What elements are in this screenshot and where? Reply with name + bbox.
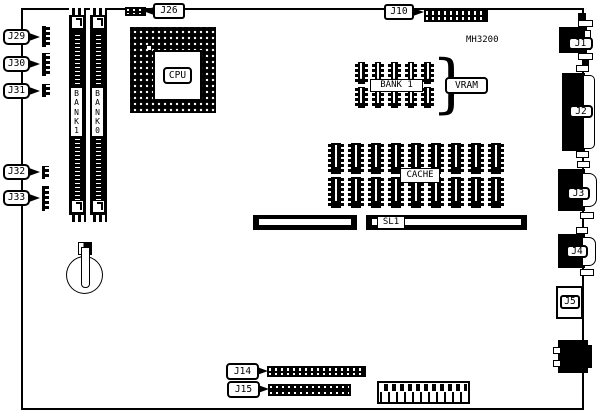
model-number-text: MH3200 [466, 36, 499, 45]
cpu-socket: CPU [130, 27, 216, 113]
simm-latch-icon [72, 17, 83, 28]
memory-chip [468, 177, 484, 208]
header-j15 [268, 384, 351, 396]
port-j1-tab [578, 53, 593, 60]
callout-vram: VRAM [445, 77, 488, 94]
port-j1-nub [578, 13, 586, 20]
jumper-j30 [42, 53, 50, 76]
simm-cap [90, 8, 107, 15]
jumper-j31 [42, 84, 50, 97]
callout-j31: J31 [3, 83, 30, 99]
port-j2-tab [576, 65, 589, 72]
port-j5-label: J5 [560, 295, 580, 309]
vram-bank-label: BANK 1 [370, 79, 423, 92]
memory-chip [368, 143, 384, 174]
callout-j10: J10 [384, 4, 414, 20]
power-connector-pins [380, 384, 467, 391]
port-j3-tab [577, 161, 590, 168]
jumper-j29 [42, 26, 50, 47]
simm-cap [90, 215, 107, 222]
motherboard-diagram: MH3200 J29 J30 J31 J32 J33 B A N K 1 B A… [0, 0, 600, 415]
memory-chip [348, 143, 364, 174]
memory-chip [448, 143, 464, 174]
callout-j30-arrow-icon [29, 60, 40, 68]
cpu-label: CPU [163, 67, 192, 85]
memory-chip [355, 62, 368, 84]
simm-latch-icon [93, 17, 104, 28]
memory-chip [488, 177, 504, 208]
memory-chip [328, 143, 344, 174]
port-j2-tab [576, 151, 589, 158]
port-j3-label: J3 [567, 187, 590, 200]
power-connector [377, 381, 470, 404]
battery-stem [81, 247, 90, 288]
callout-j10-arrow-icon [413, 8, 424, 16]
simm-cap [69, 8, 86, 15]
callout-j30: J30 [3, 56, 30, 72]
memory-chip [328, 177, 344, 208]
callout-j33-arrow-icon [29, 194, 40, 202]
callout-j32: J32 [3, 164, 30, 180]
callout-j29-arrow-icon [29, 33, 40, 41]
simm-slot-bank1-label: B A N K 1 [70, 87, 83, 137]
memory-chip [488, 143, 504, 174]
audio-jack-tab [553, 347, 561, 354]
port-j3-tab [580, 212, 594, 219]
slot-opening [259, 219, 351, 225]
memory-chip [368, 177, 384, 208]
expansion-slot-left [253, 215, 357, 230]
memory-chip [348, 177, 364, 208]
simm-slot-bank0-label: B A N K 0 [91, 87, 104, 137]
audio-jack-tab [553, 360, 561, 367]
callout-j33: J33 [3, 190, 30, 206]
port-j4-tab [576, 227, 588, 234]
callout-j26: J26 [153, 3, 185, 19]
jumper-j33 [42, 186, 49, 211]
simm-slot-bank0: B A N K 0 [90, 8, 107, 222]
header-j14 [267, 366, 366, 377]
audio-jack-bump [584, 345, 592, 368]
simm-cap [69, 215, 86, 222]
port-j4-label: J4 [566, 245, 588, 258]
jumper-j32 [42, 166, 49, 179]
port-j1-label: J1 [568, 37, 593, 50]
callout-j14: J14 [226, 363, 259, 380]
simm-slot-bank1: B A N K 1 [69, 8, 86, 222]
port-j2-label: J2 [569, 105, 593, 118]
simm-latch-icon [72, 201, 83, 212]
callout-j32-arrow-icon [29, 168, 40, 176]
cpu-pin1-mark [147, 46, 151, 50]
memory-chip [468, 143, 484, 174]
cpu-inner-area: CPU [153, 50, 202, 101]
memory-chip [448, 177, 464, 208]
simm-latch-icon [93, 201, 104, 212]
power-connector-teeth [380, 392, 467, 402]
cache-label: CACHE [400, 168, 440, 183]
sl1-label: SL1 [377, 216, 405, 229]
callout-j31-arrow-icon [29, 87, 40, 95]
header-j10 [424, 9, 488, 22]
memory-chip [355, 87, 368, 109]
callout-j15: J15 [227, 381, 260, 398]
port-j1-tab [578, 20, 593, 27]
callout-j29: J29 [3, 29, 30, 45]
port-j4-tab [580, 269, 594, 276]
